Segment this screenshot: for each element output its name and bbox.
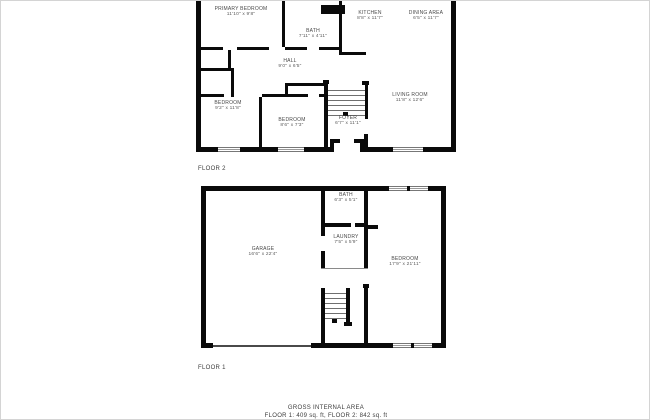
room-label-laundry: LAUNDRY 7'5" x 5'9" <box>333 234 358 246</box>
room-label-bedroom-f1: BEDROOM 17'9" x 21'11" <box>389 256 420 268</box>
wall <box>441 186 446 348</box>
wall <box>228 50 231 68</box>
wall <box>451 1 456 152</box>
floor2-label: FLOOR 2 <box>198 166 226 172</box>
room-dims: 9'0" x 6'5" <box>278 64 301 70</box>
wall <box>365 83 368 119</box>
wall <box>334 139 340 143</box>
stair-newel <box>332 319 337 323</box>
wall <box>259 97 262 147</box>
room-label-bath-f2: BATH 7'11" x 4'11" <box>299 28 327 40</box>
wall <box>201 343 213 348</box>
room-dims: 8'6" x 7'3" <box>278 123 305 129</box>
wall <box>364 147 393 152</box>
room-label-bedroom-left: BEDROOM 9'2" x 11'8" <box>214 100 241 112</box>
window <box>218 147 240 152</box>
room-label-hall: HALL 9'0" x 6'5" <box>278 58 301 70</box>
gross-area-values: FLOOR 1: 409 sq. ft, FLOOR 2: 842 sq. ft <box>265 412 388 420</box>
room-label-dining-area: DINING AREA 6'5" x 11'7" <box>409 10 443 22</box>
garage-door <box>213 345 311 347</box>
wall <box>364 286 368 348</box>
wall <box>201 186 389 191</box>
wall <box>364 134 368 147</box>
wall <box>304 147 330 152</box>
room-label-living-room: LIVING ROOM 11'8" x 12'6" <box>392 92 428 104</box>
wall <box>196 94 224 97</box>
window <box>414 343 432 348</box>
room-label-garage: GARAGE 16'6" x 22'4" <box>249 246 278 258</box>
wall <box>428 186 446 191</box>
wall <box>285 47 307 50</box>
wall <box>321 186 325 236</box>
room-label-foyer: FOYER 6'7" x 11'1" <box>335 115 361 127</box>
wall <box>325 223 351 227</box>
room-dims: 17'9" x 21'11" <box>389 262 420 268</box>
staircase <box>325 289 346 323</box>
room-dims: 7'11" x 4'11" <box>299 34 327 40</box>
window <box>389 186 407 191</box>
wall <box>237 47 269 50</box>
window <box>393 147 423 152</box>
wall <box>196 68 234 71</box>
wall-cap <box>362 81 369 85</box>
room-dims: 7'5" x 5'9" <box>333 240 358 246</box>
wall <box>196 147 218 152</box>
wall <box>240 147 278 152</box>
wall <box>432 343 446 348</box>
room-dims: 16'6" x 22'4" <box>249 252 278 258</box>
wall <box>342 52 366 55</box>
wall-cap <box>363 284 369 288</box>
opening-line <box>321 268 368 269</box>
wall <box>364 229 368 269</box>
room-label-bath-f1: BATH 6'3" x 5'1" <box>334 192 357 204</box>
room-dims: 6'7" x 11'1" <box>335 121 361 127</box>
room-dims: 6'5" x 11'7" <box>409 16 443 22</box>
room-dims: 11'8" x 12'6" <box>392 98 428 104</box>
room-dims: 9'2" x 11'8" <box>214 106 241 112</box>
window <box>410 186 428 191</box>
gross-internal-area: GROSS INTERNAL AREA FLOOR 1: 409 sq. ft,… <box>265 404 388 420</box>
wall <box>231 68 234 97</box>
wall <box>196 47 223 50</box>
room-label-kitchen: KITCHEN 8'8" x 11'7" <box>357 10 383 22</box>
wall <box>282 1 285 47</box>
window <box>278 147 304 152</box>
wall <box>196 1 201 152</box>
floor1-label: FLOOR 1 <box>198 365 226 371</box>
wall <box>346 288 350 324</box>
window <box>393 343 411 348</box>
wall <box>364 186 368 214</box>
room-dims: 11'10" x 9'8" <box>215 12 268 18</box>
room-label-primary-bedroom: PRIMARY BEDROOM 11'10" x 9'8" <box>215 6 268 18</box>
room-label-bedroom-middle: BEDROOM 8'6" x 7'3" <box>278 117 305 129</box>
floor-plan-sheet: PRIMARY BEDROOM 11'10" x 9'8" BATH 7'11"… <box>0 0 650 420</box>
wall-cap <box>323 80 329 84</box>
wall <box>262 94 308 97</box>
wall <box>201 186 206 348</box>
wall <box>319 47 342 50</box>
wall <box>423 147 456 152</box>
room-dims: 6'3" x 5'1" <box>334 198 357 204</box>
gross-area-title: GROSS INTERNAL AREA <box>265 404 388 412</box>
room-dims: 8'8" x 11'7" <box>357 16 383 22</box>
wall <box>321 251 325 269</box>
wall <box>285 83 324 86</box>
